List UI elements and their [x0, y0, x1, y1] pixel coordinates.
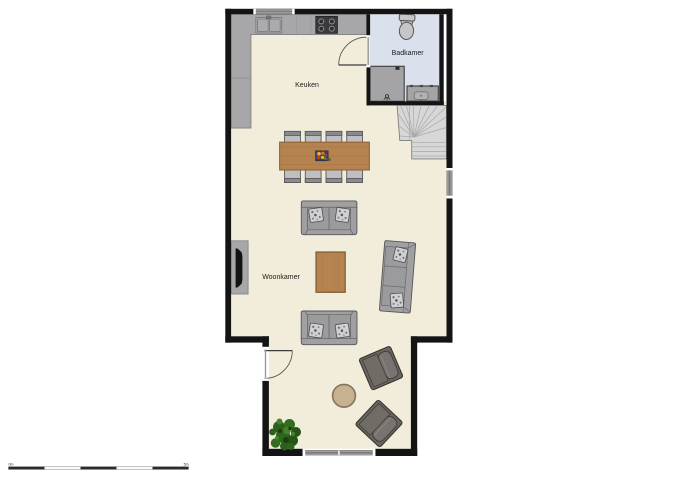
svg-text:0m: 0m [9, 462, 14, 466]
svg-text:5m: 5m [184, 462, 189, 466]
svg-text:Keuken: Keuken [295, 82, 319, 89]
svg-text:Badkamer: Badkamer [392, 50, 425, 57]
svg-text:Woonkamer: Woonkamer [262, 274, 300, 281]
